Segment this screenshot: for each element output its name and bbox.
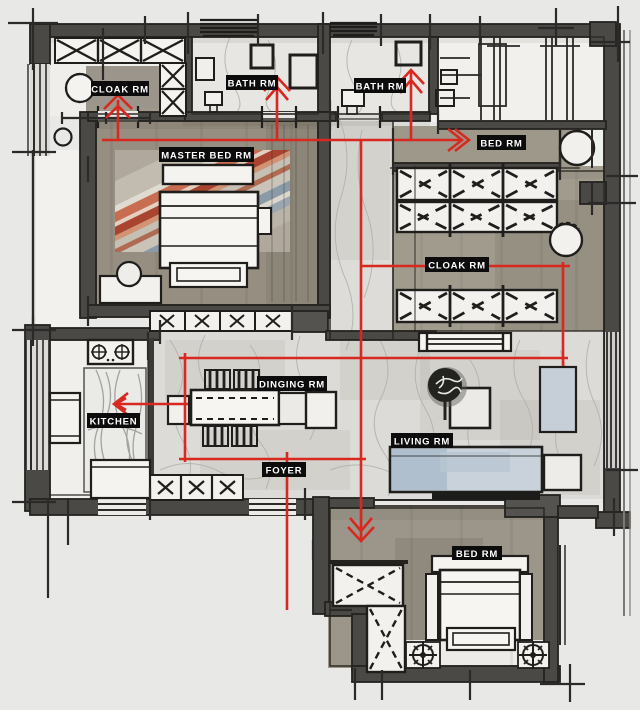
svg-text:MASTER BED RM: MASTER BED RM bbox=[161, 151, 252, 162]
svg-text:KITCHEN: KITCHEN bbox=[90, 417, 138, 428]
svg-text:LIVING RM: LIVING RM bbox=[394, 437, 450, 448]
svg-text:BATH RM: BATH RM bbox=[356, 82, 405, 93]
svg-text:BED RM: BED RM bbox=[456, 549, 498, 560]
svg-text:CLOAK RM: CLOAK RM bbox=[91, 85, 149, 96]
svg-text:BED RM: BED RM bbox=[480, 139, 522, 150]
svg-text:CLOAK RM: CLOAK RM bbox=[428, 261, 486, 272]
svg-text:FOYER: FOYER bbox=[266, 466, 303, 477]
svg-text:BATH RM: BATH RM bbox=[228, 79, 277, 90]
svg-text:DINGING RM: DINGING RM bbox=[259, 380, 325, 391]
